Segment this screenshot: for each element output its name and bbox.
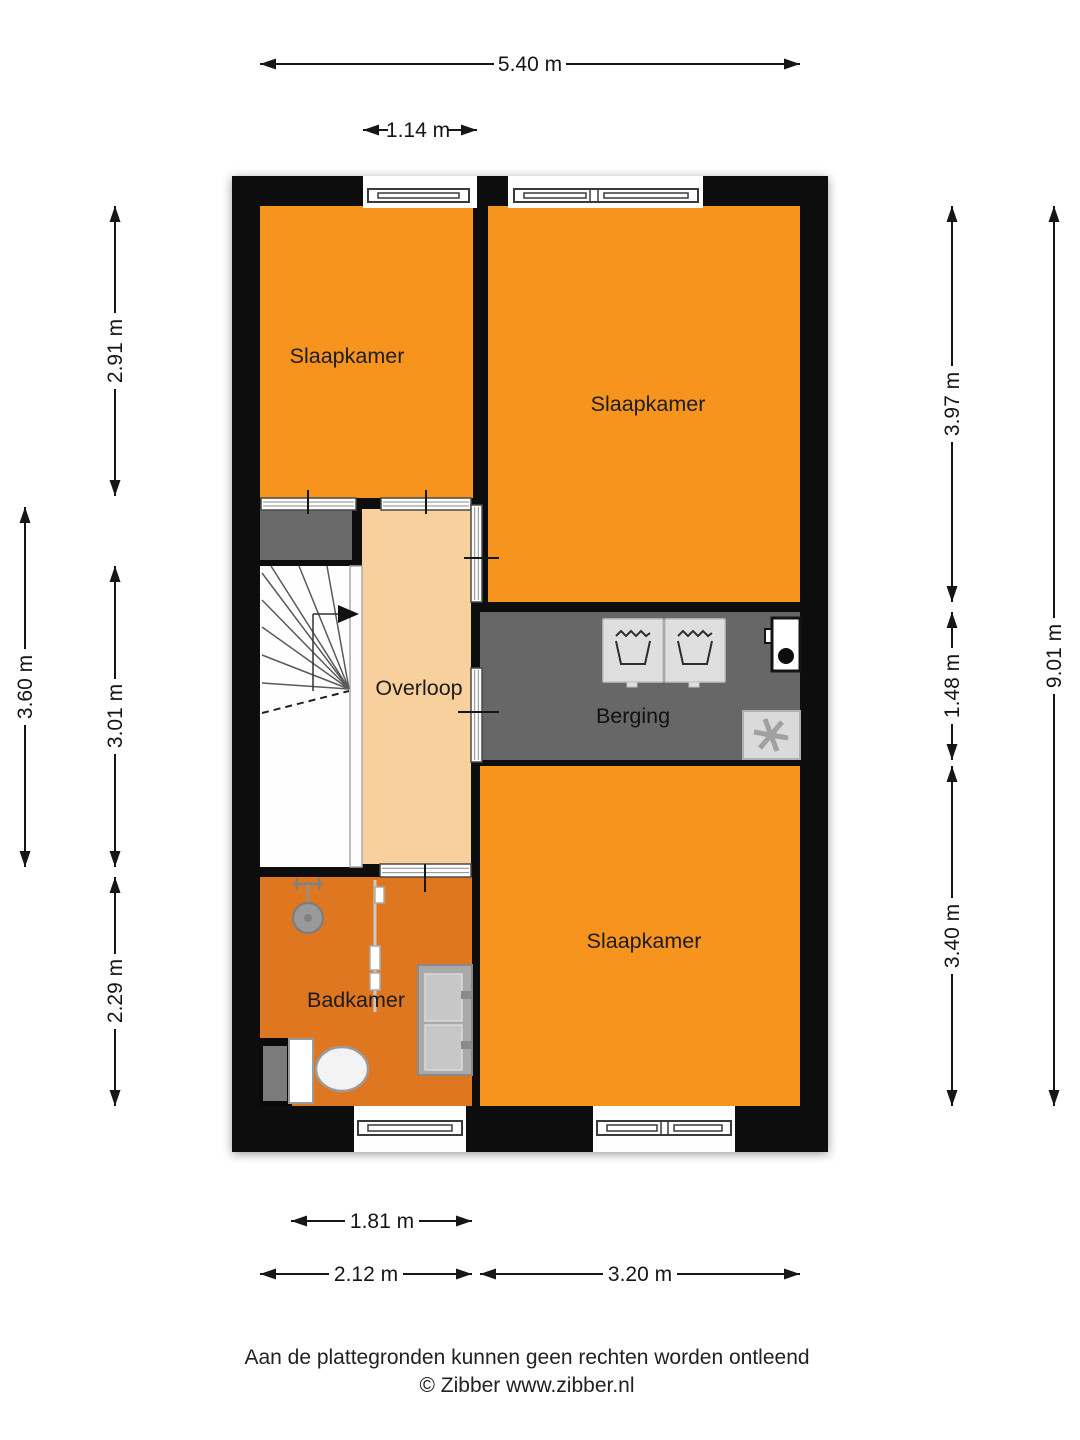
room-label-bathroom: Badkamer xyxy=(307,988,405,1012)
dimension-label: 2.91 m xyxy=(104,319,127,383)
dimension-label: 1.14 m xyxy=(386,119,450,142)
ventilation-fan-icon xyxy=(743,711,800,759)
room-label-bedroom-top-right: Slaapkamer xyxy=(591,392,706,416)
window-top-left xyxy=(363,176,477,208)
dimension-label: 5.40 m xyxy=(498,53,562,76)
window-frame xyxy=(514,189,698,202)
dimension-label: 9.01 m xyxy=(1043,624,1066,688)
washing-machine-icon xyxy=(603,619,663,687)
dimension-top-total: 5.40 m xyxy=(260,53,800,76)
dimension-label: 2.29 m xyxy=(104,959,127,1023)
room-label-landing: Overloop xyxy=(375,676,462,700)
room-label-bedroom-top-left: Slaapkamer xyxy=(290,344,405,368)
dimension-label: 1.48 m xyxy=(941,654,964,718)
dimension-right-outer-total: 9.01 m xyxy=(1043,206,1066,1106)
double-sink-icon xyxy=(418,965,472,1075)
window-bottom-bathroom xyxy=(354,1106,466,1152)
dimension-label: 3.40 m xyxy=(941,904,964,968)
closet-block xyxy=(260,509,352,560)
dimension-label: 3.60 m xyxy=(14,655,37,719)
dimension-left-bottom: 2.29 m xyxy=(104,877,127,1106)
stairs xyxy=(260,566,362,867)
floor-plan-page: Slaapkamer Slaapkamer Overloop Berging S… xyxy=(0,0,1080,1440)
duct-block xyxy=(260,1038,292,1106)
dimension-label: 3.01 m xyxy=(104,684,127,748)
room-label-storage: Berging xyxy=(596,704,670,728)
dimension-bottom-left: 2.12 m xyxy=(260,1263,472,1286)
dimension-left-outer-total: 3.60 m xyxy=(14,507,37,867)
dimension-label: 3.20 m xyxy=(608,1263,672,1286)
window-frame xyxy=(368,189,469,202)
dimension-label: 2.12 m xyxy=(334,1263,398,1286)
dimension-label: 1.81 m xyxy=(350,1210,414,1233)
room-label-bedroom-bottom-right: Slaapkamer xyxy=(587,929,702,953)
footer-copyright: © Zibber www.zibber.nl xyxy=(419,1374,634,1397)
dimension-right-top: 3.97 m xyxy=(941,206,964,602)
window-frame xyxy=(358,1121,462,1135)
dimension-top-window: 1.14 m xyxy=(363,119,477,142)
dimension-left-top: 2.91 m xyxy=(104,206,127,496)
dimension-right-middle: 1.48 m xyxy=(941,612,964,760)
dimension-label: 3.97 m xyxy=(941,372,964,436)
dimension-left-middle: 3.01 m xyxy=(104,566,127,867)
floor-plan-drawing: Slaapkamer Slaapkamer Overloop Berging S… xyxy=(0,0,1080,1440)
footer-disclaimer: Aan de plattegronden kunnen geen rechten… xyxy=(244,1346,809,1369)
washing-machine-icon xyxy=(665,619,725,687)
dimension-right-bottom: 3.40 m xyxy=(941,766,964,1106)
dimension-bottom-inner: 1.81 m xyxy=(291,1210,472,1233)
window-frame xyxy=(597,1121,731,1135)
window-top-right xyxy=(508,176,703,208)
dimension-bottom-right: 3.20 m xyxy=(480,1263,800,1286)
window-bottom-bedroom xyxy=(593,1106,735,1152)
